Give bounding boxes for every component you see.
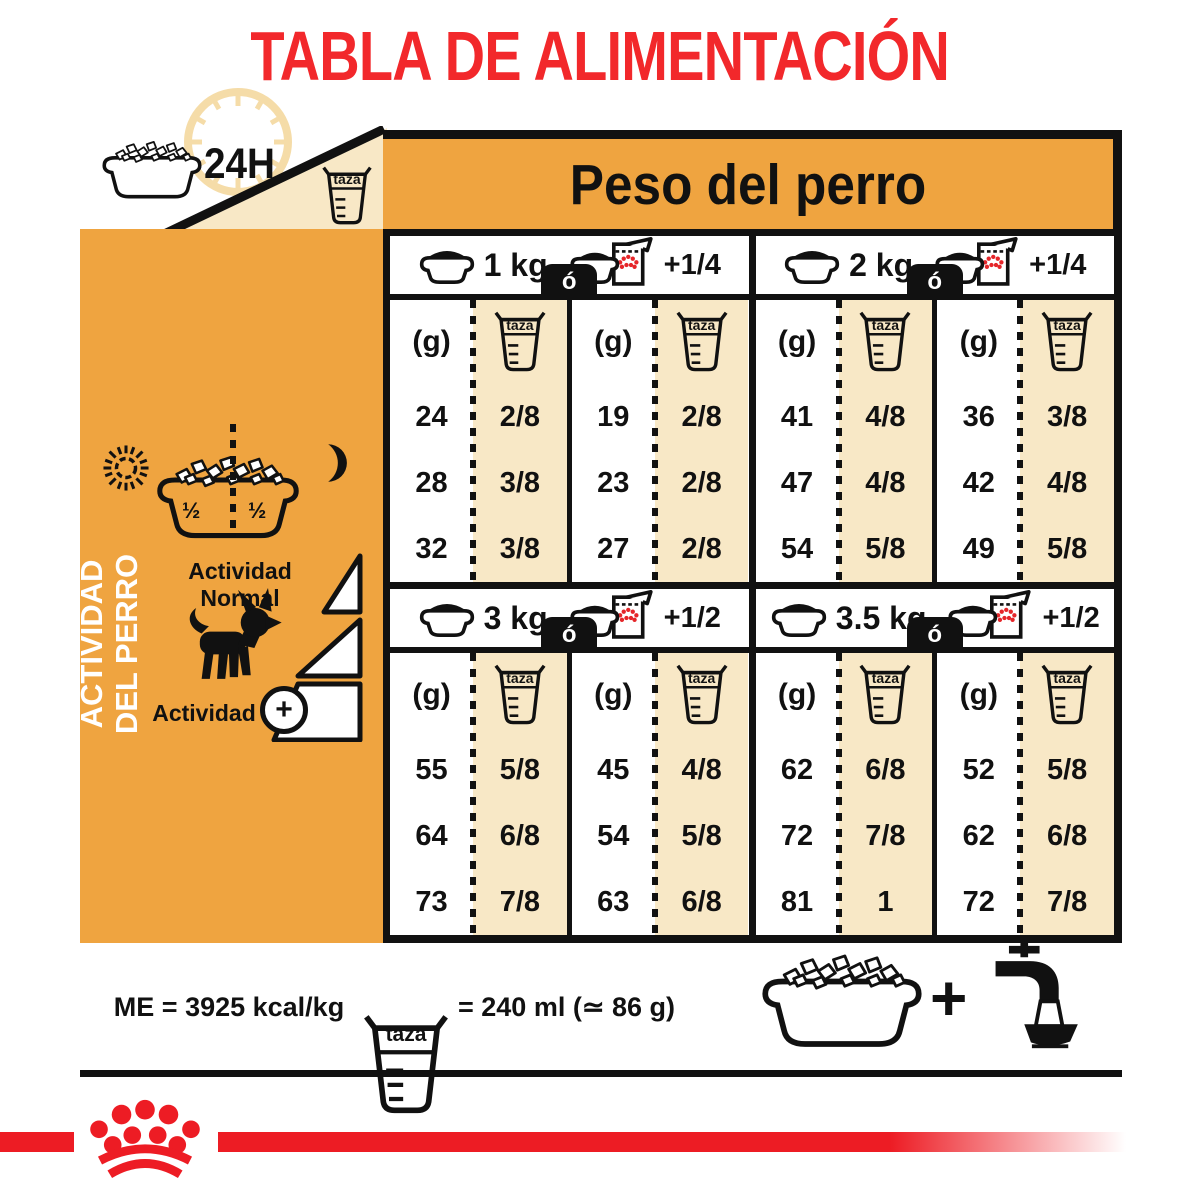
cup-header: taza: [1020, 653, 1114, 737]
half-half-bowl-icon: [148, 452, 308, 540]
hours-text: 24H: [204, 140, 275, 189]
weight-block-1: 1 kg +1/4 ó (g) taza 24 2/8 28 3/8: [390, 236, 1114, 582]
grams-value: 64: [390, 803, 473, 869]
weight-header: 3.5 kg +1/2 ó: [756, 589, 1115, 653]
weight-group-3-5kg: 3.5 kg +1/2 ó (g) taza 62 6/8 72 7/8: [756, 589, 1115, 935]
grams-value: 19: [572, 384, 655, 450]
royal-canin-crown-logo: [84, 1096, 206, 1186]
cup-label: taza: [1039, 317, 1095, 333]
grams-value: 24: [390, 384, 473, 450]
cup-label: taza: [320, 171, 374, 187]
brand-line-left: [0, 1132, 74, 1152]
weight-label: 1 kg: [484, 247, 548, 284]
kibble-bowl-icon-large: [752, 950, 932, 1049]
or-tab: ó: [907, 264, 963, 300]
grams-value: 63: [572, 869, 655, 935]
measuring-cup-icon: taza: [857, 311, 913, 373]
grams-value: 81: [756, 869, 839, 935]
cup-value: 2/8: [655, 516, 749, 582]
dry-subtable: (g) taza 41 4/8 47 4/8 54 5/8: [756, 300, 933, 582]
wet-add-label: +1/2: [1042, 602, 1099, 635]
cup-value: 6/8: [473, 803, 567, 869]
weight-header: 3 kg +1/2 ó: [390, 589, 749, 653]
grams-value: 54: [756, 516, 839, 582]
feeding-table: 1 kg +1/4 ó (g) taza 24 2/8 28 3/8: [383, 236, 1122, 943]
footer-rule: [80, 1070, 1122, 1077]
cup-header: taza: [839, 300, 933, 384]
cup-header: taza: [473, 653, 567, 737]
block-divider: [390, 582, 1114, 589]
cup-value: 4/8: [1020, 450, 1114, 516]
cup-header: taza: [473, 300, 567, 384]
grams-value: 42: [937, 450, 1020, 516]
grams-value: 49: [937, 516, 1020, 582]
cup-header: taza: [1020, 300, 1114, 384]
group-content: (g) taza 41 4/8 47 4/8 54 5/8 (g): [756, 300, 1115, 582]
cup-label: taza: [857, 670, 913, 686]
cup-value: 2/8: [473, 384, 567, 450]
activity-label: Actividad: [150, 700, 258, 727]
weight-group-3kg: 3 kg +1/2 ó (g) taza 55 5/8 64 6/8: [390, 589, 749, 935]
vertical-label-line2: DEL PERRO: [110, 539, 145, 749]
cup-label: taza: [362, 1023, 450, 1047]
group-content: (g) taza 24 2/8 28 3/8 32 3/8 (g): [390, 300, 749, 582]
water-tap-bowl-icon: [982, 942, 1078, 1052]
cup-label: taza: [492, 670, 548, 686]
cup-label: taza: [674, 670, 730, 686]
mixed-subtable: (g) taza 45 4/8 54 5/8 63 6/8: [567, 653, 749, 935]
cup-value: 3/8: [473, 450, 567, 516]
dry-bowl-icon: [783, 246, 841, 284]
half-right-label: ½: [248, 498, 266, 524]
plus-glyph: +: [275, 695, 293, 725]
cup-value: 3/8: [473, 516, 567, 582]
brand-line-right: [218, 1132, 1126, 1152]
grams-value: 23: [572, 450, 655, 516]
grams-value: 32: [390, 516, 473, 582]
group-content: (g) taza 62 6/8 72 7/8 81 1 (g): [756, 653, 1115, 935]
measuring-cup-icon: taza: [1039, 311, 1095, 373]
measuring-cup-icon: taza: [857, 664, 913, 726]
cup-value: 7/8: [839, 803, 933, 869]
wet-add-label: +1/4: [664, 249, 721, 282]
cup-value: 6/8: [655, 869, 749, 935]
cup-value: 5/8: [839, 516, 933, 582]
grams-value: 41: [756, 384, 839, 450]
cup-value: 5/8: [655, 803, 749, 869]
or-label: ó: [927, 623, 942, 647]
plus-sign: +: [930, 966, 967, 1030]
grams-value: 54: [572, 803, 655, 869]
grams-value: 72: [937, 869, 1020, 935]
or-tab: ó: [541, 617, 597, 653]
feeding-table-page: TABLA DE ALIMENTACIÓN Peso del perro 24H…: [0, 0, 1200, 1200]
cup-header: taza: [655, 653, 749, 737]
grams-value: 45: [572, 737, 655, 803]
or-label: ó: [562, 270, 577, 294]
dry-bowl-icon: [418, 246, 476, 284]
cup-value: 7/8: [1020, 869, 1114, 935]
cup-label: taza: [492, 317, 548, 333]
dry-subtable: (g) taza 55 5/8 64 6/8 73 7/8: [390, 653, 567, 935]
weight-header: 1 kg +1/4 ó: [390, 236, 749, 300]
grams-value: 62: [756, 737, 839, 803]
or-tab: ó: [541, 264, 597, 300]
kibble-bowl-icon: [96, 138, 208, 200]
measuring-cup-icon-large: taza: [362, 1014, 450, 1116]
or-tab: ó: [907, 617, 963, 653]
group-content: (g) taza 55 5/8 64 6/8 73 7/8 (g): [390, 653, 749, 935]
dry-bowl-icon: [770, 599, 828, 637]
measuring-cup-icon: taza: [320, 166, 374, 226]
measuring-cup-icon: taza: [674, 664, 730, 726]
weight-group-1kg: 1 kg +1/4 ó (g) taza 24 2/8 28 3/8: [390, 236, 749, 582]
grams-header: (g): [937, 300, 1020, 384]
vertical-label-line1: ACTIVIDAD: [75, 539, 110, 749]
group-divider: [749, 589, 756, 935]
sidebar-vertical-label: ACTIVIDAD DEL PERRO: [75, 539, 159, 749]
day-night-divider-dots: [230, 424, 236, 534]
group-divider: [749, 236, 756, 582]
cup-value: 1: [839, 869, 933, 935]
grams-header: (g): [390, 300, 473, 384]
weight-band-title: Peso del perro: [550, 152, 946, 218]
activity-plus-icon: +: [260, 686, 308, 734]
cup-value: 4/8: [839, 384, 933, 450]
measuring-cup-icon: taza: [492, 664, 548, 726]
weight-group-2kg: 2 kg +1/4 ó (g) taza 41 4/8 47 4/8: [756, 236, 1115, 582]
grams-header: (g): [937, 653, 1020, 737]
cup-value: 3/8: [1020, 384, 1114, 450]
dry-subtable: (g) taza 62 6/8 72 7/8 81 1: [756, 653, 933, 935]
cup-value: 7/8: [473, 869, 567, 935]
mixed-subtable: (g) taza 36 3/8 42 4/8 49 5/8: [932, 300, 1114, 582]
cup-value: 5/8: [473, 737, 567, 803]
dry-bowl-icon: [418, 599, 476, 637]
measuring-cup-icon: taza: [674, 311, 730, 373]
page-title-text: TABLA DE ALIMENTACIÓN: [251, 16, 950, 96]
cup-label: taza: [1039, 670, 1095, 686]
wet-add-label: +1/4: [1029, 249, 1086, 282]
grams-header: (g): [756, 300, 839, 384]
weight-header: 2 kg +1/4 ó: [756, 236, 1115, 300]
weight-label: 2 kg: [849, 247, 913, 284]
dry-subtable: (g) taza 24 2/8 28 3/8 32 3/8: [390, 300, 567, 582]
grams-value: 27: [572, 516, 655, 582]
grams-value: 62: [937, 803, 1020, 869]
cup-value: 2/8: [655, 384, 749, 450]
grams-value: 47: [756, 450, 839, 516]
cup-header: taza: [839, 653, 933, 737]
grams-value: 55: [390, 737, 473, 803]
mixed-subtable: (g) taza 52 5/8 62 6/8 72 7/8: [932, 653, 1114, 935]
grams-header: (g): [756, 653, 839, 737]
grams-value: 28: [390, 450, 473, 516]
grams-value: 72: [756, 803, 839, 869]
weight-label: 3 kg: [484, 600, 548, 637]
grams-header: (g): [572, 653, 655, 737]
or-label: ó: [562, 623, 577, 647]
sun-icon: [100, 442, 152, 494]
cup-header: taza: [655, 300, 749, 384]
cup-label: taza: [857, 317, 913, 333]
or-label: ó: [927, 270, 942, 294]
weight-band-header: Peso del perro: [383, 130, 1122, 230]
moon-icon: [318, 440, 352, 486]
grams-value: 73: [390, 869, 473, 935]
cup-value: 4/8: [655, 737, 749, 803]
cup-value: 6/8: [839, 737, 933, 803]
measuring-cup-icon: taza: [492, 311, 548, 373]
grams-header: (g): [390, 653, 473, 737]
cup-value: 5/8: [1020, 737, 1114, 803]
cup-value: 4/8: [839, 450, 933, 516]
cup-value: 5/8: [1020, 516, 1114, 582]
weight-block-2: 3 kg +1/2 ó (g) taza 55 5/8 64 6/8: [390, 589, 1114, 935]
cup-label: taza: [674, 317, 730, 333]
weight-band-title-text: Peso del perro: [570, 152, 926, 218]
mixed-subtable: (g) taza 19 2/8 23 2/8 27 2/8: [567, 300, 749, 582]
cup-value: 6/8: [1020, 803, 1114, 869]
me-energy-label: ME = 3925 kcal/kg: [98, 992, 360, 1023]
half-left-label: ½: [182, 498, 200, 524]
wet-add-label: +1/2: [664, 602, 721, 635]
measuring-cup-icon: taza: [1039, 664, 1095, 726]
grams-value: 52: [937, 737, 1020, 803]
grams-value: 36: [937, 384, 1020, 450]
grams-header: (g): [572, 300, 655, 384]
cup-equivalence-label: = 240 ml (≃ 86 g): [458, 992, 675, 1023]
cup-value: 2/8: [655, 450, 749, 516]
hours-label: 24H: [200, 140, 279, 189]
